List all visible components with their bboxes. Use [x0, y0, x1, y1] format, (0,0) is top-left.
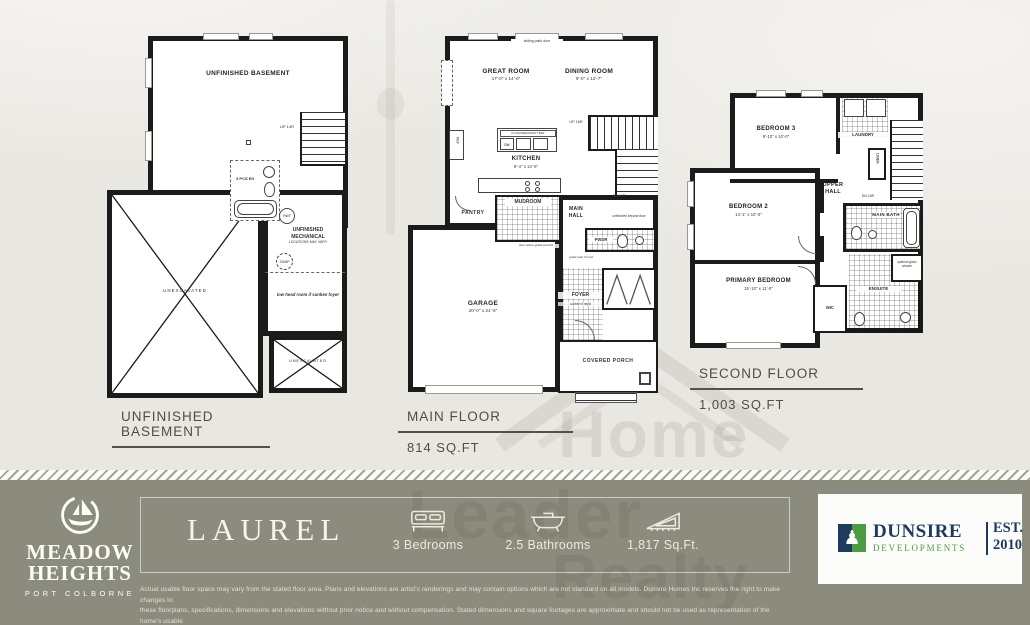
second-floor-title-block: SECOND FLOOR 1,003 SQ.FT — [690, 366, 863, 412]
great-room-dims: 17'-0" x 14'-0" — [461, 76, 551, 82]
bed-icon — [409, 508, 447, 534]
spec-bedrooms-label: 3 Bedrooms — [368, 538, 488, 552]
second-stairs — [890, 120, 923, 200]
label-hwt: HWT — [283, 214, 291, 218]
stove-burner — [525, 187, 530, 192]
label-mudroom: MUDROOM — [505, 199, 551, 206]
est-year: 2010 — [993, 537, 1023, 554]
dishwasher: DW — [500, 138, 514, 150]
floorplan-sheet: Home UNFINISHED BASEMENT UP 14R 3 PCS R/… — [0, 0, 1030, 625]
second-window — [756, 90, 786, 97]
developer-sub: DEVELOPMENTS — [873, 543, 966, 553]
second-window — [801, 90, 823, 97]
dryer — [866, 99, 886, 117]
bedroom3-name: BEDROOM 3 — [756, 126, 795, 132]
basement-title-block: UNFINISHED BASEMENT — [112, 409, 270, 448]
dunsire-pawn-icon: ♟ — [838, 524, 866, 552]
stairs-up — [588, 115, 658, 151]
stove-burner — [535, 181, 540, 186]
label-main-hall: MAIN HALL — [561, 206, 591, 219]
bifold-doors — [604, 270, 654, 308]
unexcavated-x — [112, 195, 258, 393]
disclaimer-line2: these floorplans, specifications, dimens… — [140, 606, 790, 625]
label-door-grade: door where grade permits — [513, 244, 559, 248]
label-covered-porch: COVERED PORCH — [568, 358, 648, 365]
mech-note: LOCATIONS MAY VARY — [271, 240, 345, 245]
stairs-down — [615, 149, 658, 195]
spec-bathrooms: 2.5 Bathrooms — [488, 508, 608, 552]
label-dn-14r: DN 14R — [607, 194, 631, 199]
second-window — [687, 224, 694, 250]
main-window — [585, 33, 623, 40]
sink-icon — [263, 166, 275, 178]
label-garage: GARAGE 20'-0" x 21'-6" — [433, 300, 533, 314]
stove-burner — [535, 187, 540, 192]
community-name-line1: MEADOW — [14, 542, 146, 563]
basement-vent — [203, 33, 239, 40]
sink-icon — [900, 312, 911, 323]
bathroom-rough-in: 3 PCS R/I — [230, 160, 280, 221]
toilet-icon — [617, 234, 628, 248]
great-room-name: GREAT ROOM — [482, 68, 529, 75]
second-floor-sqft: 1,003 SQ.FT — [690, 390, 863, 412]
sink-icon — [868, 230, 877, 239]
kitchen-island: FLUSH BREAKFAST BAR DW — [497, 128, 557, 152]
community-name-line2: HEIGHTS — [14, 563, 146, 584]
refrigerator: REF — [449, 130, 464, 160]
label-dining-room: DINING ROOM 9'-0" x 12'-7" — [553, 68, 625, 82]
unexcavated-area-small — [269, 335, 347, 393]
main-floor-title: MAIN FLOOR — [398, 409, 573, 433]
developer-established: EST. 2010 — [993, 520, 1023, 555]
toilet-icon — [851, 226, 862, 240]
bathtub-inner — [237, 203, 274, 215]
second-floor-title: SECOND FLOOR — [690, 366, 863, 390]
label-pwdr: PWDR — [589, 237, 613, 242]
wall-bed3-laundry — [836, 96, 840, 154]
second-window — [687, 181, 694, 207]
divider — [986, 522, 988, 555]
label-breakfast-bar: FLUSH BREAKFAST BAR — [500, 130, 556, 137]
toilet-icon — [854, 312, 865, 326]
toilet-icon — [264, 182, 275, 197]
main-floor-sqft: 814 SQ.FT — [398, 433, 573, 455]
garage-dims: 20'-0" x 21'-6" — [433, 308, 533, 314]
label-main-bath: MAIN BATH — [872, 212, 900, 218]
dashed-partition — [265, 272, 345, 273]
wall-bed2-primary — [690, 260, 820, 264]
porch-post — [639, 372, 651, 385]
label-sliding-patio-door: sliding patio door — [511, 39, 563, 44]
spec-bathrooms-label: 2.5 Bathrooms — [488, 538, 608, 552]
unexcavated-x — [274, 340, 342, 388]
label-ref: REF — [455, 137, 460, 144]
primary-dims: 15'-10" x 11'-0" — [716, 286, 801, 291]
label-dw: DW — [504, 143, 509, 147]
basement-plan: UNFINISHED BASEMENT UP 14R 3 PCS R/I HWT… — [103, 26, 351, 404]
second-floor-plan: BEDROOM 3 9'-10" x 10'-0" LAUNDRY LINEN … — [686, 86, 930, 354]
linen-closet: LINEN — [868, 148, 886, 180]
label-linen: LINEN — [875, 153, 880, 164]
room-powder: PWDR — [585, 228, 656, 252]
banner: Leader Realty MEADOW HEIGHTS PORT COLBOR… — [0, 480, 1030, 625]
label-unfinished-mechanical: UNFINISHED MECHANICAL LOCATIONS MAY VARY — [271, 227, 345, 245]
great-room-feature-wall — [441, 60, 453, 106]
primary-name: PRIMARY BEDROOM — [726, 278, 791, 284]
bathtub-shape — [234, 200, 277, 218]
garage-name: GARAGE — [468, 300, 498, 307]
basement-stairs — [300, 112, 345, 166]
bedroom2-dims: 14'-1" x 10'-0" — [706, 212, 791, 217]
island-sink — [516, 138, 531, 150]
label-low-head-room: low head room if sunken foyer — [271, 292, 345, 298]
model-info-box: LAUREL 3 Bedrooms 2.5 Bath — [140, 497, 790, 573]
basement-window — [145, 131, 152, 161]
room-wic: WIC — [813, 285, 847, 333]
area-icon — [644, 508, 682, 534]
label-unexcavated-small: UNEXCAVATED — [269, 358, 347, 363]
label-great-room: GREAT ROOM 17'-0" x 14'-0" — [461, 68, 551, 82]
disclaimer: Actual usable floor space may vary from … — [140, 585, 790, 625]
second-floor-left-block — [690, 168, 820, 348]
sailboat-icon — [57, 493, 103, 537]
unexcavated-area-large — [107, 190, 263, 398]
washer — [844, 99, 864, 117]
main-floor-title-block: MAIN FLOOR 814 SQ.FT — [398, 409, 573, 455]
label-pantry: PANTRY — [451, 210, 495, 217]
label-sunken: sunken if req'd — [558, 302, 603, 306]
basement-vent — [249, 33, 273, 40]
label-kitchen: KITCHEN 9'-4" x 14'-6" — [491, 156, 561, 169]
main-floor-plan: sliding patio door GREAT ROOM 17'-0" x 1… — [403, 28, 661, 404]
basement-window — [145, 58, 152, 88]
label-up-14r: UP 14R — [273, 124, 301, 129]
island-sink — [533, 138, 548, 150]
bathtub-inner — [906, 211, 917, 245]
room-mudroom: MUDROOM — [495, 195, 561, 242]
optional-shower: optional glass shower — [891, 254, 923, 282]
garage-door-opening — [425, 385, 543, 394]
label-unexcavated-large: UNEXCAVATED — [115, 288, 255, 294]
foyer-closet — [602, 268, 656, 310]
sump-pit: SUMP — [276, 253, 293, 270]
label-dn-16r: DN 16R — [856, 194, 880, 199]
room-main-bath: MAIN BATH — [843, 203, 923, 252]
bedroom2-name: BEDROOM 2 — [729, 204, 768, 210]
label-foyer: FOYER — [558, 292, 603, 299]
label-laundry: LAUNDRY — [838, 132, 888, 138]
meadow-heights-logo: MEADOW HEIGHTS PORT COLBORNE — [14, 493, 146, 598]
kitchen-dims: 9'-4" x 14'-6" — [491, 164, 561, 169]
dining-room-dims: 9'-0" x 12'-7" — [553, 76, 625, 82]
cn-tower-pod-watermark — [377, 88, 404, 120]
label-up-16r: UP 16R — [563, 120, 589, 125]
label-bedroom2: BEDROOM 2 14'-1" x 10'-0" — [706, 204, 791, 217]
bedroom3-dims: 9'-10" x 10'-0" — [736, 134, 816, 139]
label-3pcs-ri: 3 PCS R/I — [233, 176, 257, 181]
spec-area-label: 1,817 Sq.Ft. — [603, 538, 723, 552]
label-sump: SUMP — [279, 260, 289, 264]
label-unfinished-beyond: unfinished beyond door — [605, 214, 653, 218]
model-name: LAUREL — [187, 512, 345, 548]
spec-bedrooms: 3 Bedrooms — [368, 508, 488, 552]
community-location: PORT COLBORNE — [14, 589, 146, 598]
label-ensuite: ENSUITE — [856, 286, 901, 292]
dining-room-name: DINING ROOM — [565, 68, 613, 75]
spec-area: 1,817 Sq.Ft. — [603, 508, 723, 552]
second-window — [726, 342, 781, 349]
label-wic: WIC — [817, 305, 843, 310]
kitchen-name: KITCHEN — [512, 156, 541, 162]
developer-name: DUNSIRE — [873, 521, 962, 543]
main-window — [468, 33, 498, 40]
dunsire-logo: ♟ DUNSIRE DEVELOPMENTS EST. 2010 — [818, 494, 1022, 584]
disclaimer-line1: Actual usable floor space may vary from … — [140, 585, 790, 606]
label-primary-bedroom: PRIMARY BEDROOM 15'-10" x 11'-0" — [716, 278, 801, 291]
floor-drain — [246, 140, 251, 145]
room-covered-porch — [558, 340, 658, 393]
bathtub-shape — [903, 208, 920, 248]
label-unfinished-basement: UNFINISHED BASEMENT — [173, 70, 323, 78]
label-bedroom3: BEDROOM 3 9'-10" x 10'-0" — [736, 126, 816, 139]
kitchen-counter — [478, 178, 561, 193]
stove-burner — [525, 181, 530, 186]
label-grade-stair: grade stair if req'd — [559, 256, 603, 260]
sink-icon — [635, 236, 644, 245]
label-upper-hall: UPPER HALL — [816, 182, 850, 196]
porch-steps — [575, 392, 637, 403]
label-optional-shower: optional glass shower — [895, 260, 919, 268]
bathtub-icon — [529, 508, 567, 534]
hot-water-tank: HWT — [279, 208, 295, 224]
basement-title: UNFINISHED BASEMENT — [112, 409, 270, 448]
wall-hall-bed2 — [820, 236, 824, 262]
est-label: EST. — [993, 520, 1023, 537]
